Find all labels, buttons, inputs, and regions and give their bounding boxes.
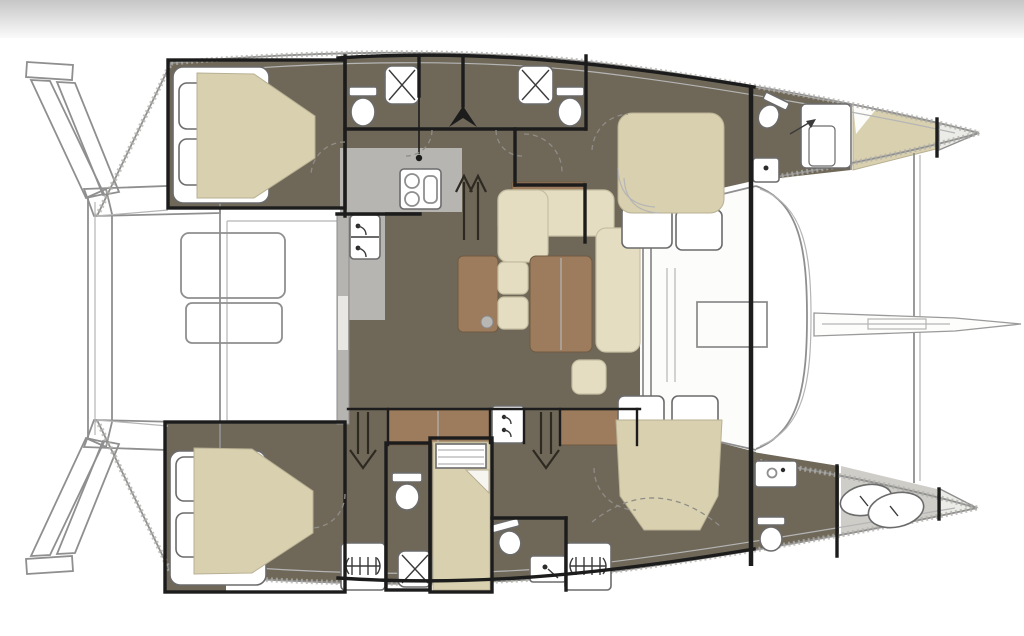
armchair-cushion xyxy=(498,262,528,294)
toilet-tank xyxy=(556,87,584,96)
toilet-tank xyxy=(757,517,785,525)
stool xyxy=(572,360,606,394)
vanity-sink xyxy=(492,406,524,443)
toilet-icon xyxy=(558,98,582,126)
fwd-cabin-top-bed xyxy=(618,113,724,250)
door-pivot-dot xyxy=(416,155,422,161)
toilet-icon xyxy=(395,484,419,510)
toilet-tank xyxy=(392,473,422,482)
cockpit-bench xyxy=(186,303,282,343)
companionway-ladder-right xyxy=(565,543,611,590)
salon-sliding-door xyxy=(338,296,348,350)
bed-seat xyxy=(676,210,722,250)
sofa-corner xyxy=(498,190,548,262)
counter xyxy=(388,410,490,445)
double-berth-mattress xyxy=(618,113,724,213)
armchair-cushion xyxy=(498,297,528,329)
single-berth-bottom xyxy=(433,442,490,590)
floor-plan-drawing xyxy=(0,0,1024,636)
toilet-icon xyxy=(760,527,782,551)
floor-lamp-dot xyxy=(481,316,493,328)
toilet-icon xyxy=(351,98,375,126)
lower-hull-counters xyxy=(388,406,638,445)
trampoline-edge xyxy=(756,186,807,449)
cockpit-table xyxy=(181,233,285,298)
catamaran-floor-plan xyxy=(0,0,1024,636)
toilet-tank xyxy=(349,87,377,96)
double-berth-mattress xyxy=(616,420,722,530)
trampoline-rigging xyxy=(756,153,1021,483)
aft-davit-beam xyxy=(88,189,112,447)
companionway-ladder-left xyxy=(341,543,385,590)
cockpit xyxy=(181,188,349,450)
